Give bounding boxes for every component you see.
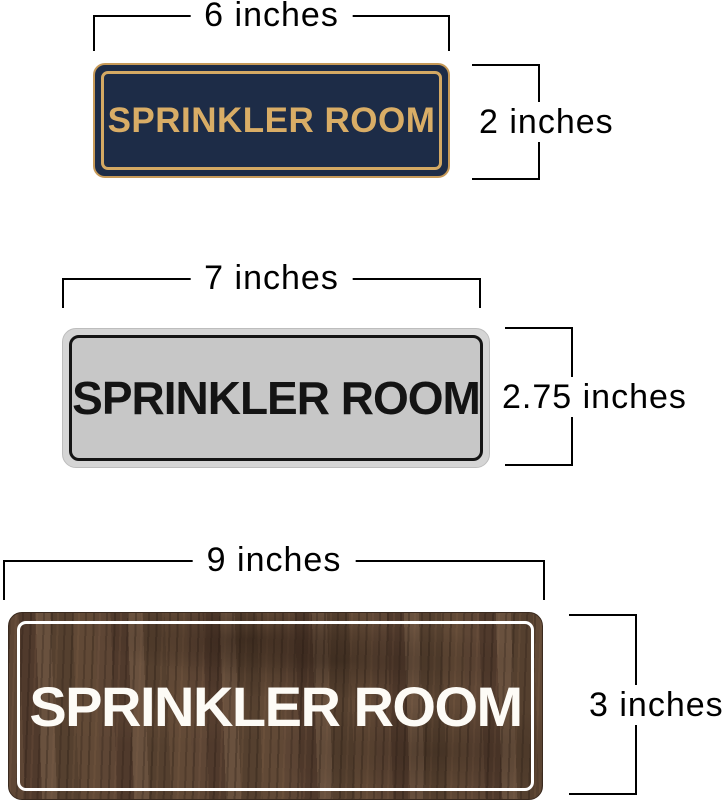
dimension-tick (569, 614, 637, 616)
height-dimension-275in: 2.75 inches (505, 327, 573, 466)
dimension-tick (93, 15, 95, 51)
height-dimension-2in: 2 inches (472, 64, 540, 180)
sign-navy-6x2: SPRINKLER ROOM (93, 63, 450, 178)
width-dimension-label: 9 inches (193, 542, 356, 578)
dimension-tick (448, 15, 450, 51)
dimension-tick (3, 560, 5, 600)
dimension-tick (479, 278, 481, 308)
height-dimension-label: 2 inches (475, 102, 618, 142)
sign-inner-border: SPRINKLER ROOM (17, 621, 534, 791)
dimension-tick (505, 327, 573, 329)
sign-text: SPRINKLER ROOM (72, 371, 480, 425)
width-dimension-6in: 6 inches (93, 0, 450, 52)
height-dimension-label: 3 inches (585, 685, 722, 725)
sign-text: SPRINKLER ROOM (108, 101, 436, 141)
width-dimension-label: 6 inches (190, 0, 353, 33)
sign-walnut-9x3: SPRINKLER ROOM (8, 612, 543, 800)
width-dimension-9in: 9 inches (3, 545, 545, 603)
dimension-tick (472, 64, 540, 66)
product-size-diagram: 6 inches SPRINKLER ROOM 2 inches 7 inche… (0, 0, 722, 805)
sign-text: SPRINKLER ROOM (29, 674, 521, 739)
dimension-tick (472, 178, 540, 180)
sign-inner-border: SPRINKLER ROOM (101, 71, 442, 170)
dimension-tick (505, 464, 573, 466)
sign-inner-border: SPRINKLER ROOM (69, 335, 483, 461)
width-dimension-7in: 7 inches (62, 263, 481, 311)
width-dimension-label: 7 inches (190, 260, 353, 296)
sign-silver-7x275: SPRINKLER ROOM (62, 328, 490, 468)
height-dimension-label: 2.75 inches (498, 377, 691, 417)
dimension-tick (62, 278, 64, 308)
height-dimension-3in: 3 inches (569, 614, 637, 795)
dimension-tick (543, 560, 545, 600)
dimension-tick (569, 793, 637, 795)
